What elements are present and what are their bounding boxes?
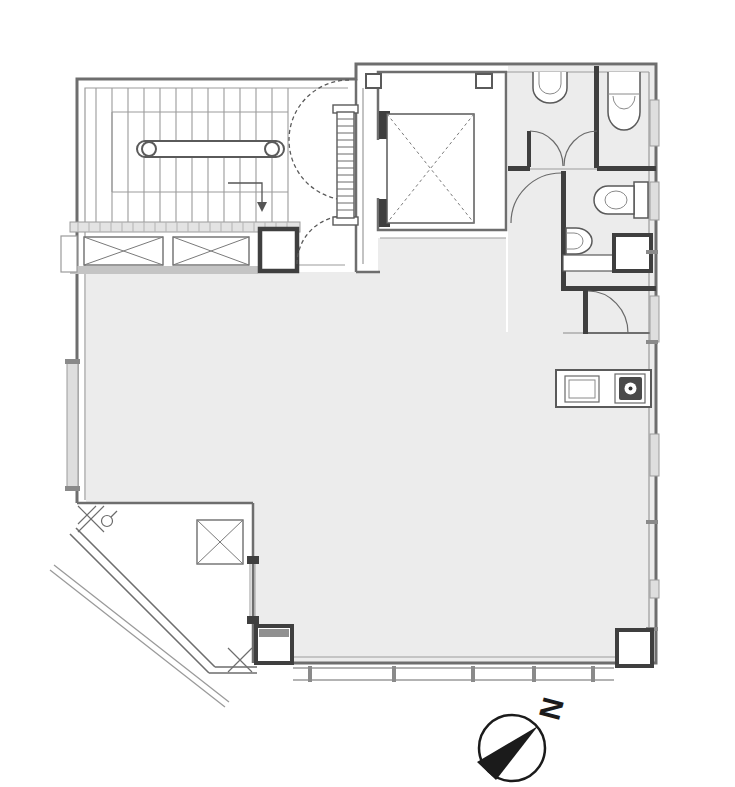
toilet-mid-bowl — [594, 186, 634, 214]
mullion-bottom-1 — [308, 666, 312, 682]
kitchenette — [556, 370, 651, 407]
window-right-4 — [650, 434, 659, 476]
mullion-right-2 — [646, 340, 658, 344]
wc-door-leaf-lower — [583, 289, 588, 334]
top-wall-column-1 — [366, 74, 381, 88]
terrace-door-jamb-top — [247, 556, 259, 564]
wc-front-wall-left — [508, 166, 530, 171]
handrail-post-right — [265, 142, 279, 156]
window-left-wall — [67, 362, 78, 488]
stove-burner-center — [629, 387, 633, 391]
mullion-bottom-2 — [392, 666, 396, 682]
window-right-3 — [650, 296, 659, 342]
duct-shaft-box — [260, 229, 297, 271]
mullion-right-3 — [646, 520, 658, 524]
bottom-window-band-lines — [293, 668, 614, 680]
mullion-bottom-4 — [532, 666, 536, 682]
mullion-right-1 — [646, 250, 658, 254]
drain-symbol — [102, 516, 113, 527]
terrace-door-jamb-bottom — [247, 616, 259, 624]
corner-hatch-lower — [228, 648, 252, 672]
window-left-cap-top — [65, 359, 80, 364]
window-left-cap-bottom — [65, 486, 80, 491]
floor-plan-page: N — [0, 0, 735, 787]
mullion-bottom-3 — [471, 666, 475, 682]
ladder-rail — [337, 112, 354, 218]
wc-front-wall-right — [597, 166, 656, 171]
corner-hatch-upper — [78, 506, 104, 532]
stair-handrail — [137, 141, 284, 157]
pipe-shaft-box — [614, 235, 651, 271]
compass-north-label: N — [533, 694, 570, 723]
handrail-post-left — [142, 142, 156, 156]
band-bottom-bar — [70, 266, 258, 274]
terrace — [102, 511, 244, 564]
stair-direction-line — [228, 183, 262, 203]
mullion-bottom-5 — [591, 666, 595, 682]
window-right-1 — [650, 100, 659, 146]
lobby — [289, 80, 358, 264]
left-pilaster — [61, 236, 77, 272]
toilet-mid-tank — [634, 182, 648, 218]
window-right-5 — [650, 580, 659, 598]
compass: N — [477, 694, 570, 781]
drain-symbol-tail — [111, 511, 117, 517]
wc-lower-partition — [561, 286, 656, 291]
column-bottom-right — [617, 630, 652, 666]
column-bottom-left-cap — [259, 629, 289, 637]
wc-counter — [563, 255, 613, 271]
site-boundary-diagonal — [50, 565, 229, 707]
urinal — [566, 228, 592, 254]
floor-plan-canvas: N — [0, 0, 735, 787]
window-right-2 — [650, 182, 659, 220]
staircase — [137, 141, 284, 212]
wc-door-leaf-left — [527, 131, 531, 167]
wc-stall-partition — [594, 66, 599, 168]
stair-direction-arrowhead — [257, 202, 267, 212]
wash-basin — [533, 72, 567, 103]
toilet-stall-top — [608, 72, 640, 130]
shaft-band — [61, 222, 300, 274]
top-wall-column-2 — [476, 74, 492, 88]
